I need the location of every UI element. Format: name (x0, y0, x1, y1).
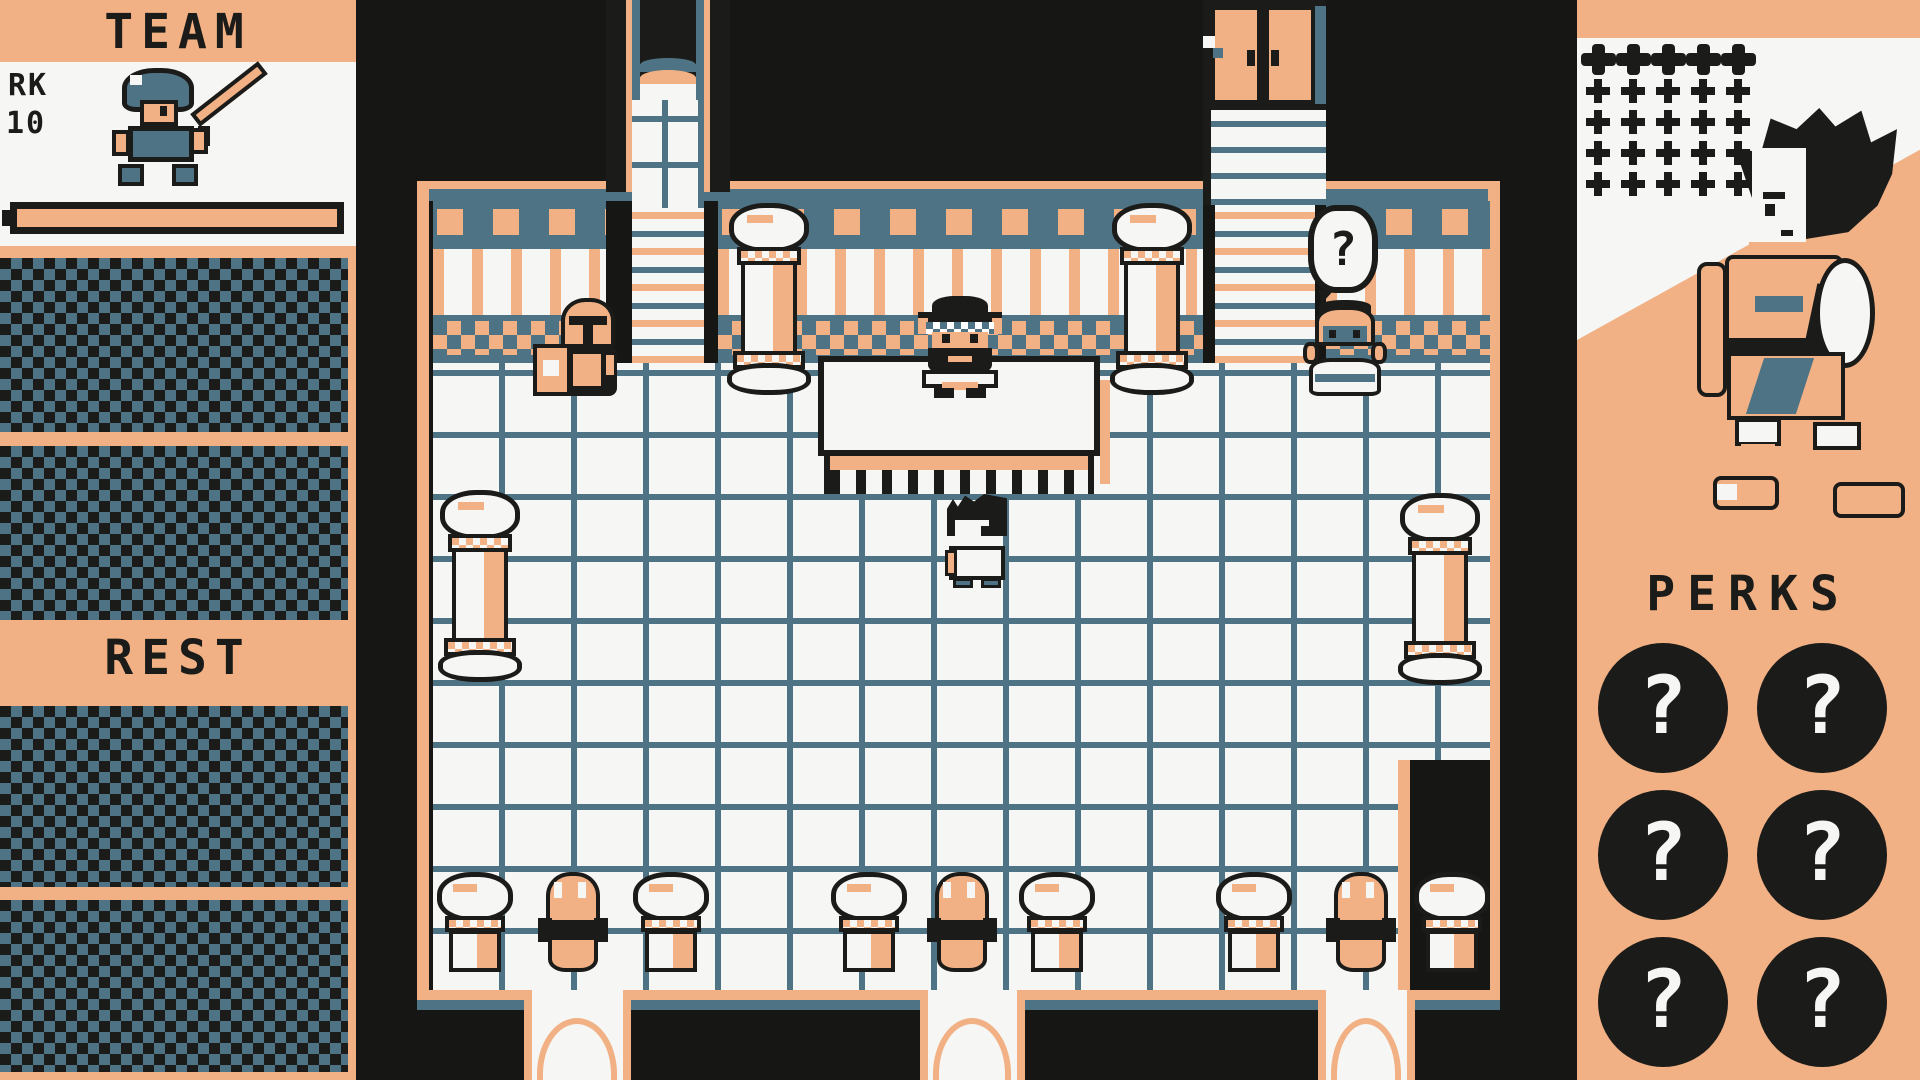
exit-south-center[interactable] (920, 990, 1025, 1080)
team-title: TEAM (0, 4, 356, 60)
door-frame-shade (1315, 6, 1326, 104)
stump-pillar (1017, 872, 1097, 972)
perk-slot-4[interactable]: ? (1757, 790, 1887, 920)
vendor-eye (1329, 330, 1336, 338)
table-skirt (824, 456, 1094, 470)
question-sign-label: ? (1329, 222, 1357, 276)
arch-wall-right (704, 0, 730, 192)
exit-south-right[interactable] (1318, 990, 1415, 1080)
question-mark: ? (1639, 659, 1687, 752)
shopkeeper-foot (934, 388, 954, 398)
perk-slot-2[interactable]: ? (1757, 643, 1887, 773)
frog-statue (538, 872, 608, 972)
hp-fill (17, 209, 337, 227)
plus-pip-icon (1651, 44, 1686, 75)
plus-pip-icon (1686, 44, 1721, 75)
crate-label (543, 360, 559, 376)
vendor-eye (1353, 330, 1360, 338)
portrait-arm (1697, 262, 1727, 397)
rest-button[interactable]: REST (0, 630, 356, 686)
plus-pip-icon (1581, 75, 1616, 106)
perk-slot-5[interactable]: ? (1598, 937, 1728, 1067)
helmet-glint (130, 75, 142, 85)
perk-slot-1[interactable]: ? (1598, 643, 1728, 773)
plus-pip-icon (1581, 44, 1616, 75)
arch-wall-left (606, 0, 632, 192)
plus-pip-icon (1581, 168, 1616, 199)
knight-torso (128, 126, 194, 162)
plus-pip-icon (1616, 168, 1651, 199)
vendor-stool-stripe (1315, 374, 1375, 382)
double-door[interactable] (1203, 0, 1326, 110)
team-empty-slot-3[interactable] (0, 706, 348, 887)
npc-crate-porter[interactable] (533, 296, 621, 398)
arch-landing (632, 100, 704, 208)
shopkeeper-foot (966, 388, 986, 398)
plus-pip-icon (1651, 106, 1686, 137)
stump-pillar (1214, 872, 1294, 972)
perks-panel: PERKS ? ? ? ? ? ? (1577, 0, 1920, 1080)
hp-bar (10, 202, 344, 234)
exit-south-left[interactable] (524, 990, 631, 1080)
porter-visor (583, 316, 593, 344)
wall-top-outline (417, 181, 1500, 189)
npc-shopkeeper[interactable] (918, 296, 1002, 398)
portrait-eye (1765, 204, 1775, 216)
stump-pillar (435, 872, 515, 972)
knight-arm-left (112, 130, 130, 156)
portrait-knee-wrap (1735, 418, 1781, 446)
door-brick-base (1203, 110, 1326, 205)
plus-pip-icon (1651, 137, 1686, 168)
plus-pip-icon (1651, 75, 1686, 106)
portrait-mouth (1781, 230, 1793, 236)
knight-eye (160, 106, 167, 116)
question-mark: ? (1798, 806, 1846, 899)
pillar (438, 490, 522, 682)
npc-masked-vendor[interactable] (1303, 300, 1388, 396)
plus-pip-icon (1616, 137, 1651, 168)
player-character[interactable] (945, 494, 1009, 588)
team-panel: TEAM RK 10 (0, 0, 356, 1080)
arch-threshold (640, 84, 696, 100)
knight-boot-right (172, 164, 198, 186)
pillar (727, 203, 811, 395)
exit-arch (933, 1018, 1011, 1080)
perks-title: PERKS (1577, 566, 1920, 622)
plus-pip-icon (1721, 44, 1756, 75)
wall-left-outline (417, 181, 429, 990)
pillar (1398, 493, 1482, 685)
porter-arm (603, 352, 617, 378)
exit-arch (1331, 1018, 1401, 1080)
table-shadow (1100, 380, 1110, 484)
wall-top-lip (417, 189, 1500, 201)
perk-slot-3[interactable]: ? (1598, 790, 1728, 920)
perk-slot-6[interactable]: ? (1757, 937, 1887, 1067)
shopkeeper-eye (970, 334, 978, 343)
question-sign[interactable]: ? (1308, 205, 1378, 293)
shopkeeper-mouth (948, 356, 972, 362)
stump-pillar (829, 872, 909, 972)
player-shoe (953, 578, 973, 588)
plus-pip-icon (1581, 106, 1616, 137)
team-empty-slot-1[interactable] (0, 258, 348, 432)
knight-boot-left (118, 164, 144, 186)
door-handle-left (1247, 50, 1255, 66)
plus-pip-icon (1581, 137, 1616, 168)
question-mark: ? (1798, 953, 1846, 1046)
sparkle-icon (1203, 36, 1215, 48)
frog-statue (927, 872, 997, 972)
plus-pip-icon (1616, 75, 1651, 106)
team-unit-card[interactable]: RK 10 (0, 62, 356, 246)
arch-stairs[interactable] (632, 208, 704, 363)
player-arm (945, 550, 957, 576)
rank-label: RK (8, 68, 48, 103)
question-mark: ? (1639, 953, 1687, 1046)
door-stairs[interactable] (1215, 205, 1315, 363)
player-tunic (949, 546, 1005, 580)
frieze-square-band (433, 201, 606, 243)
portrait-chest-shade (1755, 296, 1803, 312)
portrait-knee-wrap (1813, 422, 1861, 450)
portrait-boot-highlight (1717, 484, 1737, 500)
plus-pip-icon (1651, 168, 1686, 199)
question-mark: ? (1639, 806, 1687, 899)
knight-arm-right (190, 128, 208, 154)
stump-pillar (631, 872, 711, 972)
fighter-portrait (1697, 100, 1920, 525)
porter-chest (573, 354, 601, 386)
team-empty-slot-4[interactable] (0, 900, 348, 1072)
knight-face (140, 100, 178, 126)
portrait-brow (1763, 192, 1785, 199)
frog-statue (1326, 872, 1396, 972)
arch-doorway[interactable] (632, 0, 704, 100)
stump-pillar (1412, 872, 1492, 972)
portrait-boot (1833, 482, 1905, 518)
sparkle-icon (1213, 48, 1223, 58)
plus-pip-icon (1616, 106, 1651, 137)
knight-unit-icon (88, 68, 278, 198)
question-mark: ? (1798, 659, 1846, 752)
player-eye (981, 526, 989, 536)
game-screen: TEAM RK 10 (0, 0, 1920, 1080)
sword-blade-icon (190, 61, 268, 127)
map-viewport: ? (356, 0, 1577, 1080)
door-handle-right (1271, 50, 1279, 66)
exit-arch (537, 1018, 617, 1080)
unit-level: 10 (6, 106, 46, 141)
team-empty-slot-2[interactable] (0, 446, 348, 620)
pillar (1110, 203, 1194, 395)
plus-pip-icon (1616, 44, 1651, 75)
shopkeeper-eye (942, 334, 950, 343)
table-fringe (824, 470, 1094, 494)
player-shoe (981, 578, 1001, 588)
hp-bar-notch (2, 210, 12, 226)
